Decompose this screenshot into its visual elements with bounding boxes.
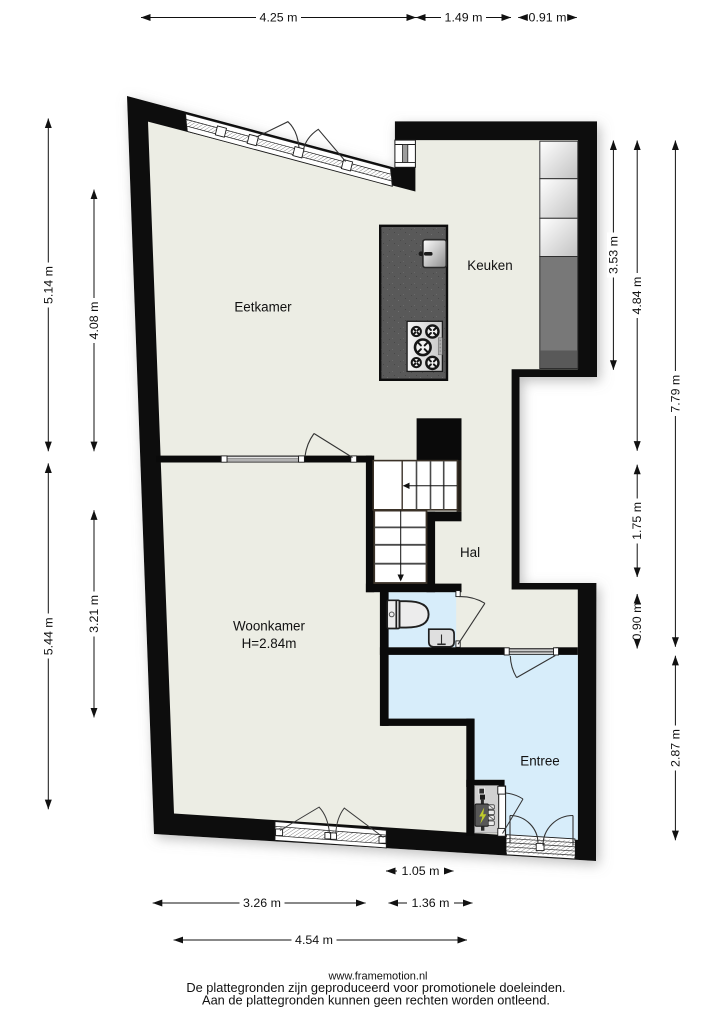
svg-text:1.05 m: 1.05 m [402,864,440,878]
svg-text:5.44 m: 5.44 m [41,617,55,655]
svg-text:H=2.84m: H=2.84m [242,636,297,651]
svg-text:Hal: Hal [460,545,480,560]
svg-text:Keuken: Keuken [467,258,512,273]
svg-text:Woonkamer: Woonkamer [233,619,305,634]
svg-text:4.84 m: 4.84 m [630,277,644,315]
svg-text:1.75 m: 1.75 m [630,502,644,540]
svg-text:7.79 m: 7.79 m [668,375,682,413]
svg-text:1.49 m: 1.49 m [445,11,483,25]
svg-text:3.53 m: 3.53 m [606,236,620,274]
svg-text:4.54 m: 4.54 m [295,933,333,947]
svg-text:4.08 m: 4.08 m [87,302,101,340]
svg-text:2.87 m: 2.87 m [668,729,682,767]
svg-text:Entree: Entree [520,754,559,769]
svg-text:4.25 m: 4.25 m [260,11,298,25]
svg-text:3.26 m: 3.26 m [243,896,281,910]
svg-text:1.36 m: 1.36 m [412,896,450,910]
svg-text:5.14 m: 5.14 m [41,266,55,304]
svg-text:Eetkamer: Eetkamer [234,300,292,315]
svg-text:0.91 m: 0.91 m [529,11,567,25]
svg-text:3.21 m: 3.21 m [87,595,101,633]
svg-text:Aan de plattegronden kunnen ge: Aan de plattegronden kunnen geen rechten… [202,993,550,1008]
svg-text:0.90 m: 0.90 m [630,603,644,641]
